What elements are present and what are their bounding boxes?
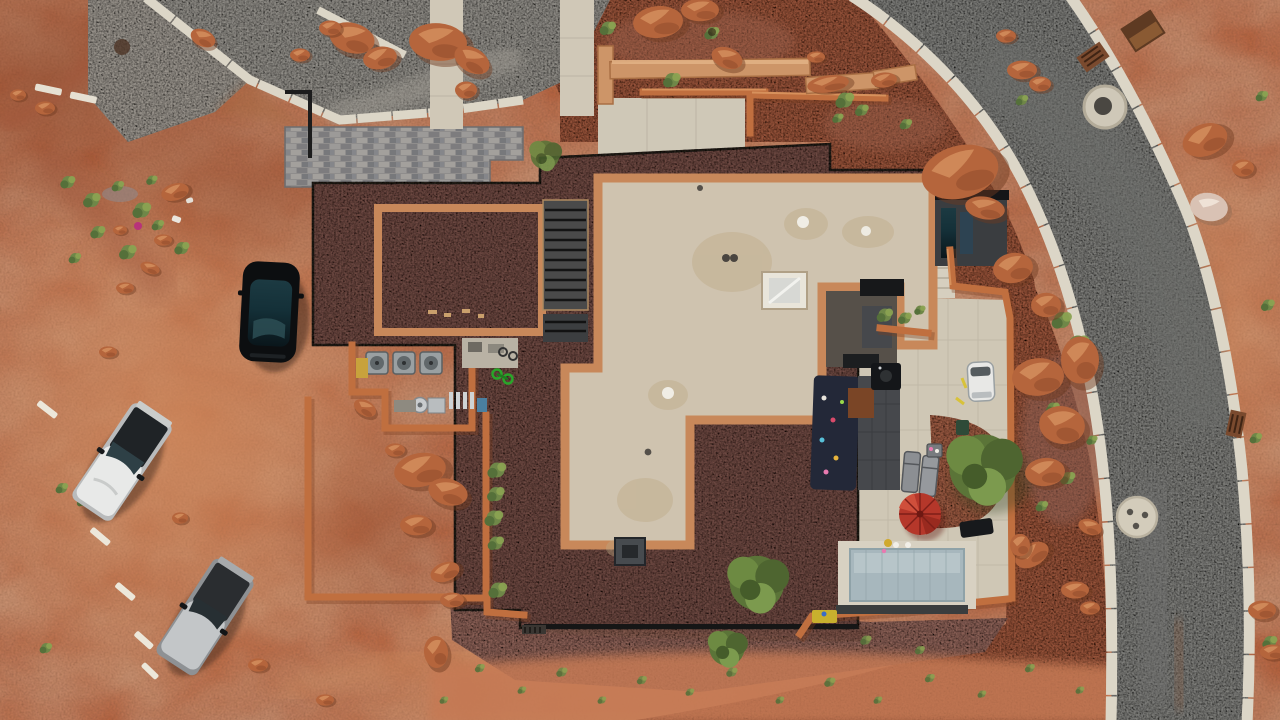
roof-notch-patio: [826, 279, 904, 368]
roof-drain-grate: [522, 625, 546, 634]
tank: [477, 398, 487, 412]
manhole: [1117, 497, 1157, 537]
flower: [134, 222, 142, 230]
pool-trench-drain: [836, 605, 968, 614]
pool: [836, 541, 976, 614]
ac-unit: [393, 352, 415, 374]
skylight: [762, 272, 807, 309]
planter-wall: [880, 328, 928, 333]
ac-unit: [366, 352, 388, 374]
utility-box: [356, 358, 368, 378]
aerial-photo: [0, 0, 1280, 720]
manhole: [1084, 86, 1126, 128]
chimney: [615, 538, 645, 565]
lounge-chair: [901, 451, 920, 492]
louvered-skylight: [543, 200, 588, 342]
window-awning: [860, 279, 904, 296]
side-mirror: [238, 290, 245, 295]
side-mirror: [297, 293, 304, 298]
patio-table: [927, 444, 942, 457]
bbq-grill: [871, 363, 901, 390]
ac-unit: [420, 352, 442, 374]
rusted-steel-wall: [848, 388, 874, 418]
lounge-chair: [919, 455, 939, 496]
utility-cart: [967, 361, 995, 401]
bin: [956, 420, 969, 435]
yellow-toy: [884, 539, 892, 547]
